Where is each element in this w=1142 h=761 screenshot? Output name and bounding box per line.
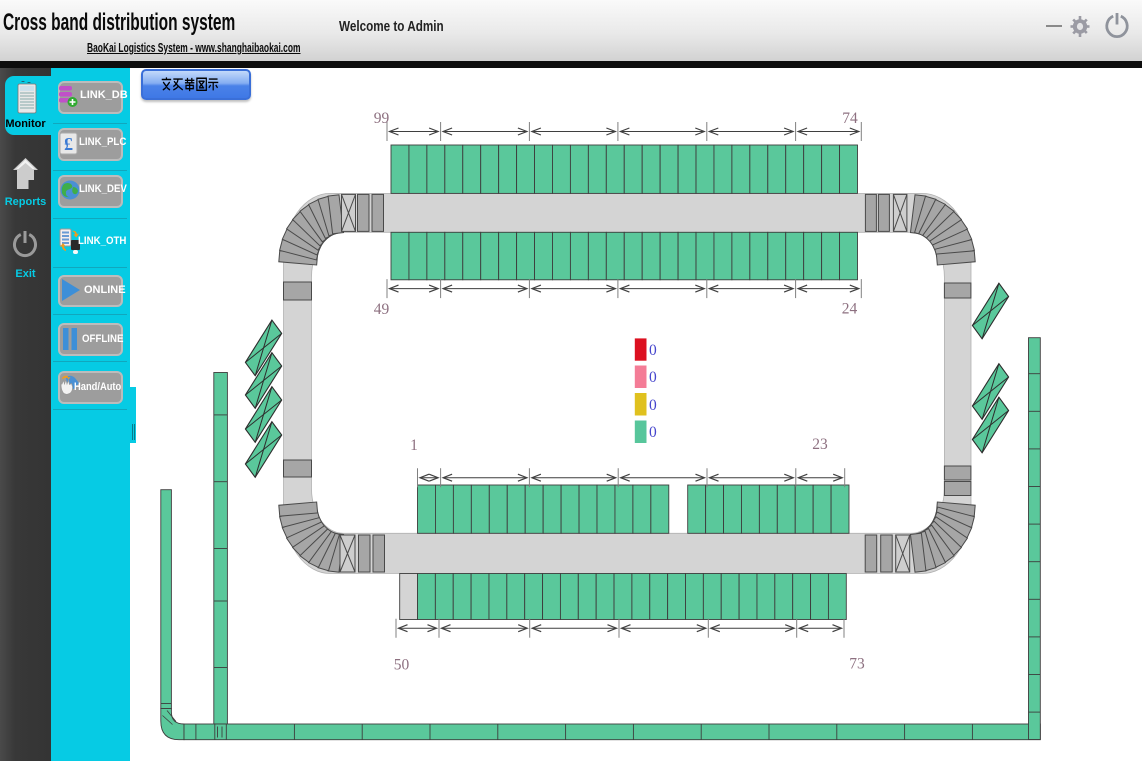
svg-text:99: 99 (374, 110, 390, 127)
svg-text:0: 0 (649, 424, 657, 441)
svg-text:73: 73 (849, 656, 865, 673)
svg-text:0: 0 (649, 369, 657, 386)
svg-text:74: 74 (842, 110, 858, 127)
svg-text:23: 23 (812, 436, 828, 453)
svg-text:24: 24 (842, 301, 858, 318)
svg-text:50: 50 (394, 657, 410, 674)
svg-text:1: 1 (410, 437, 418, 454)
svg-text:49: 49 (374, 301, 390, 318)
svg-text:0: 0 (649, 342, 657, 359)
svg-text:0: 0 (649, 397, 657, 414)
